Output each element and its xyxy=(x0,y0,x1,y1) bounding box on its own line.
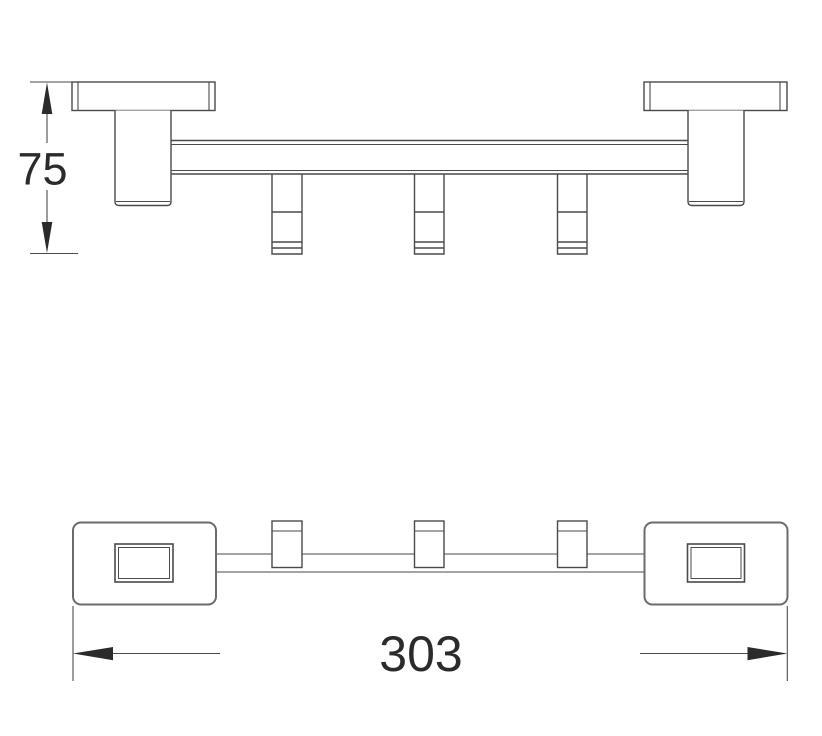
right-wall-plate xyxy=(644,82,787,111)
height-dimension-label: 75 xyxy=(17,144,67,195)
right-mounting-post xyxy=(688,111,744,206)
hook-1-front xyxy=(272,174,302,254)
front-view: 75 xyxy=(17,82,787,254)
arrowhead-up xyxy=(42,83,53,115)
hooks-plan xyxy=(272,521,587,568)
arrowhead-right xyxy=(748,647,788,660)
hook-3-plan xyxy=(558,521,588,568)
plan-view: 303 xyxy=(73,521,788,682)
left-mounting-post xyxy=(115,111,171,206)
right-post-outline xyxy=(688,111,744,206)
left-post-section xyxy=(115,544,173,582)
towel-bar xyxy=(170,141,688,175)
hook-2-front xyxy=(415,174,445,254)
hook-3-plan-outline xyxy=(558,521,588,568)
technical-drawing: 75 xyxy=(0,0,822,736)
hook-2-plan-outline xyxy=(415,521,445,568)
hook-2-plan xyxy=(415,521,445,568)
arrowhead-left xyxy=(73,647,113,660)
right-plate-plan xyxy=(645,523,788,605)
arrowhead-down xyxy=(42,222,53,253)
hook-3-front xyxy=(558,174,588,254)
hooks-front xyxy=(272,174,587,254)
left-plate-outline xyxy=(72,82,215,111)
length-dimension: 303 xyxy=(73,606,787,682)
drawing-canvas: 75 xyxy=(0,0,822,736)
right-plate-outline xyxy=(644,82,787,111)
right-post-section xyxy=(688,544,745,582)
length-dimension-label: 303 xyxy=(379,626,462,682)
left-plate-plan xyxy=(73,523,216,605)
left-wall-plate xyxy=(72,82,215,111)
height-dimension: 75 xyxy=(17,82,78,254)
hook-1-plan xyxy=(272,521,302,568)
left-post-outline xyxy=(115,111,171,206)
hook-1-plan-outline xyxy=(272,521,302,568)
